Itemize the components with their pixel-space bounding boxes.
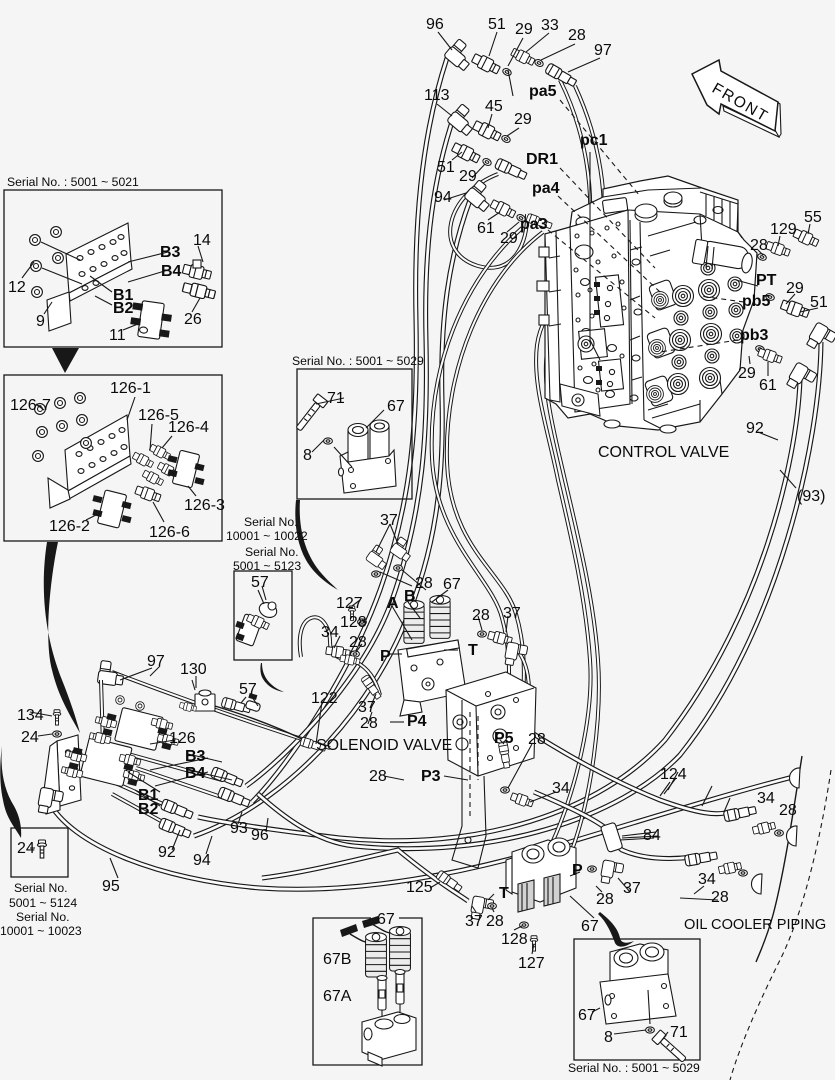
svg-text:P5: P5: [494, 730, 514, 747]
svg-text:34: 34: [321, 624, 339, 641]
svg-text:28: 28: [750, 237, 768, 254]
svg-text:B: B: [404, 588, 416, 605]
svg-text:10001 ~ 10023: 10001 ~ 10023: [0, 924, 82, 938]
svg-text:P: P: [572, 862, 583, 879]
svg-text:127: 127: [518, 955, 545, 972]
svg-text:37: 37: [623, 880, 641, 897]
svg-text:B3: B3: [185, 748, 206, 765]
svg-text:Serial No.: Serial No.: [16, 910, 70, 924]
svg-text:29: 29: [786, 280, 804, 297]
svg-text:OIL COOLER PIPING: OIL COOLER PIPING: [684, 917, 826, 933]
svg-text:B4: B4: [185, 765, 206, 782]
svg-text:28: 28: [528, 731, 546, 748]
svg-text:67B: 67B: [323, 951, 351, 968]
svg-text:29: 29: [514, 111, 532, 128]
svg-text:37: 37: [465, 913, 483, 930]
svg-text:126-4: 126-4: [168, 419, 209, 436]
svg-text:Serial No. : 5001 ~ 5029: Serial No. : 5001 ~ 5029: [568, 1061, 700, 1075]
svg-text:P4: P4: [407, 713, 427, 730]
svg-text:129: 129: [770, 221, 797, 238]
svg-text:34: 34: [552, 780, 570, 797]
svg-text:28: 28: [779, 802, 797, 819]
svg-text:34: 34: [698, 871, 716, 888]
svg-text:67A: 67A: [323, 988, 352, 1005]
svg-text:28: 28: [596, 891, 614, 908]
svg-text:67: 67: [377, 911, 395, 928]
svg-text:34: 34: [757, 790, 775, 807]
svg-text:96: 96: [251, 827, 269, 844]
svg-text:93: 93: [230, 820, 248, 837]
svg-text:PT: PT: [756, 272, 777, 289]
svg-text:B3: B3: [160, 244, 181, 261]
svg-text:B2: B2: [138, 801, 159, 818]
svg-text:92: 92: [746, 420, 764, 437]
svg-text:28: 28: [486, 913, 504, 930]
svg-text:126-6: 126-6: [149, 524, 190, 541]
svg-text:28: 28: [568, 27, 586, 44]
svg-text:97: 97: [147, 653, 165, 670]
svg-text:Serial No. : 5001 ~ 5021: Serial No. : 5001 ~ 5021: [7, 175, 139, 189]
svg-text:pc1: pc1: [580, 132, 608, 149]
svg-text:126-7: 126-7: [10, 397, 51, 414]
svg-text:37: 37: [503, 605, 521, 622]
svg-text:29: 29: [500, 230, 518, 247]
svg-text:95: 95: [102, 878, 120, 895]
svg-text:37: 37: [358, 699, 376, 716]
svg-text:28: 28: [415, 575, 433, 592]
svg-text:5001 ~ 5124: 5001 ~ 5124: [9, 896, 77, 910]
svg-text:DR1: DR1: [526, 151, 558, 168]
svg-text:51: 51: [810, 294, 828, 311]
svg-text:96: 96: [426, 16, 444, 33]
svg-text:B4: B4: [161, 263, 182, 280]
svg-text:94: 94: [434, 189, 452, 206]
svg-text:P: P: [380, 648, 391, 665]
svg-text:28: 28: [711, 889, 729, 906]
svg-text:10001 ~ 10022: 10001 ~ 10022: [226, 529, 308, 543]
svg-text:CONTROL VALVE: CONTROL VALVE: [598, 444, 729, 461]
svg-text:126-2: 126-2: [49, 518, 90, 535]
svg-text:28: 28: [360, 715, 378, 732]
svg-text:45: 45: [485, 98, 503, 115]
svg-text:57: 57: [251, 574, 269, 591]
svg-text:Serial No. : 5001 ~ 5029: Serial No. : 5001 ~ 5029: [292, 354, 424, 368]
svg-text:T: T: [499, 885, 509, 902]
svg-text:28: 28: [369, 768, 387, 785]
svg-text:67: 67: [387, 398, 405, 415]
svg-text:T: T: [468, 642, 478, 659]
svg-text:61: 61: [477, 220, 495, 237]
svg-text:pb3: pb3: [740, 327, 769, 344]
svg-text:26: 26: [184, 311, 202, 328]
svg-text:Serial No.: Serial No.: [245, 545, 299, 559]
svg-text:29: 29: [515, 21, 533, 38]
svg-text:5001 ~ 5123: 5001 ~ 5123: [233, 559, 301, 573]
svg-text:125: 125: [406, 879, 433, 896]
svg-text:92: 92: [158, 844, 176, 861]
svg-text:29: 29: [738, 365, 756, 382]
svg-text:33: 33: [541, 17, 559, 34]
svg-text:67: 67: [443, 576, 461, 593]
svg-text:pa3: pa3: [520, 216, 548, 233]
svg-text:11: 11: [109, 327, 126, 344]
svg-text:B2: B2: [113, 300, 134, 317]
svg-text:P3: P3: [421, 768, 441, 785]
svg-text:28: 28: [472, 607, 490, 624]
svg-text:28: 28: [349, 634, 367, 651]
svg-text:122: 122: [311, 690, 338, 707]
svg-text:126: 126: [169, 730, 196, 747]
svg-text:A: A: [387, 595, 399, 612]
svg-text:12: 12: [8, 279, 26, 296]
svg-text:Serial No.: Serial No.: [14, 881, 68, 895]
svg-text:9: 9: [36, 313, 45, 330]
svg-text:51: 51: [488, 16, 506, 33]
svg-text:113: 113: [424, 87, 450, 104]
svg-text:94: 94: [193, 852, 211, 869]
svg-text:124: 124: [660, 766, 687, 783]
svg-text:61: 61: [759, 377, 777, 394]
svg-text:130: 130: [180, 661, 207, 678]
svg-text:71: 71: [670, 1024, 688, 1041]
svg-text:55: 55: [804, 209, 822, 226]
svg-text:pb5: pb5: [742, 293, 771, 310]
svg-text:37: 37: [380, 512, 398, 529]
svg-text:126-3: 126-3: [184, 497, 225, 514]
svg-text:8: 8: [303, 447, 312, 464]
svg-text:14: 14: [193, 232, 211, 249]
svg-text:24: 24: [21, 729, 39, 746]
svg-text:pa5: pa5: [529, 83, 557, 100]
svg-text:(93): (93): [797, 488, 825, 505]
svg-text:127: 127: [336, 595, 363, 612]
svg-text:126-1: 126-1: [110, 380, 151, 397]
svg-text:128: 128: [340, 614, 367, 631]
svg-text:29: 29: [459, 168, 477, 185]
svg-text:84: 84: [643, 827, 661, 844]
svg-text:24: 24: [17, 840, 35, 857]
svg-text:134: 134: [17, 707, 44, 724]
svg-text:97: 97: [594, 42, 612, 59]
svg-text:8: 8: [604, 1029, 613, 1046]
svg-text:51: 51: [437, 159, 455, 176]
svg-text:128: 128: [501, 931, 528, 948]
svg-text:67: 67: [578, 1007, 596, 1024]
svg-text:pa4: pa4: [532, 180, 560, 197]
svg-text:57: 57: [239, 681, 257, 698]
svg-text:SOLENOID VALVE: SOLENOID VALVE: [316, 737, 452, 754]
svg-text:67: 67: [581, 918, 599, 935]
svg-text:Serial No.: Serial No.: [244, 515, 298, 529]
svg-text:71: 71: [327, 390, 345, 407]
